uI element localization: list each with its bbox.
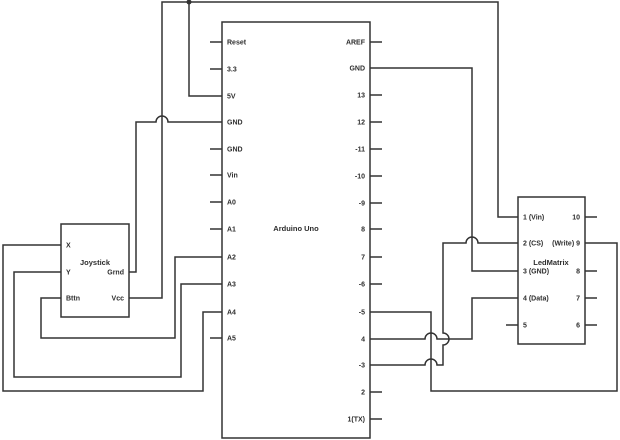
pin-label-arduino-a0: A0 [227,200,236,207]
pin-label-joystick-vcc: Vcc [112,296,125,303]
pin-label-arduino-8: 8 [361,227,365,234]
pin-label-arduino-12: 12 [357,120,365,127]
pin-label-arduino-1tx: 1(TX) [348,417,366,424]
wire-x-a4 [3,245,222,391]
pin-label-arduino-7: 7 [361,255,365,262]
pin-label-arduino-vin: Vin [227,173,238,180]
pin-label-joystick-x: X [66,243,71,250]
component-title-arduino: Arduino Uno [273,224,319,233]
pin-label-ledmatrix-5: 5 [523,323,527,330]
wire-5v-drop [189,2,222,96]
pin-label-arduino-aref: AREF [346,40,366,47]
pin-label-arduino-9: -9 [359,201,365,208]
pin-label-arduino-5v: 5V [227,94,236,101]
pin-label-arduino-a2: A2 [227,255,236,262]
pin-label-arduino-2: 2 [361,390,365,397]
wire-neg3-cs [370,237,518,365]
pin-label-arduino-gnd: GND [227,147,243,154]
pin-label-ledmatrix-6: 6 [576,323,580,330]
schematic-canvas: Arduino UnoReset3.35VGNDGNDVinA0A1A2A3A4… [0,0,620,440]
wire-junction-dot [187,0,192,5]
component-title-joystick: Joystick [80,258,111,267]
pin-label-arduino-a5: A5 [227,336,236,343]
wire-gnd-ledmatrix [370,68,518,271]
pin-label-ledmatrix-2cs: 2 (CS) [523,241,543,248]
pin-label-joystick-y: Y [66,270,71,277]
pin-label-arduino-gnd: GND [349,66,365,73]
pin-label-ledmatrix-1vin: 1 (Vin) [523,215,544,222]
pin-label-arduino-10: -10 [355,174,365,181]
pin-label-arduino-33: 3.3 [227,67,237,74]
pin-label-arduino-reset: Reset [227,40,247,47]
wire-gnd-joystick [129,116,222,272]
pin-label-arduino-3: -3 [359,363,365,370]
pin-label-arduino-13: 13 [357,93,365,100]
pin-label-joystick-bttn: Bttn [66,296,80,303]
pin-label-ledmatrix-write9: (Write) 9 [552,241,580,248]
pin-label-arduino-gnd: GND [227,120,243,127]
pin-label-arduino-a3: A3 [227,282,236,289]
pin-label-arduino-6: -6 [359,282,365,289]
wire-neg5-write9 [370,243,617,391]
pin-label-arduino-4: 4 [361,337,365,344]
circuit-diagram: Arduino UnoReset3.35VGNDGNDVinA0A1A2A3A4… [0,0,620,440]
wire-y-a3 [14,272,222,377]
pin-label-arduino-a1: A1 [227,227,236,234]
pin-label-ledmatrix-8: 8 [576,269,580,276]
pin-label-ledmatrix-4data: 4 (Data) [523,296,549,303]
pin-label-ledmatrix-10: 10 [572,215,580,222]
pin-label-ledmatrix-7: 7 [576,296,580,303]
wire-power-net [129,2,518,298]
pin-label-joystick-grnd: Grnd [107,270,124,277]
pin-label-arduino-11: -11 [355,147,365,154]
component-title-ledmatrix: LedMatrix [533,258,569,267]
pin-label-arduino-a4: A4 [227,310,236,317]
pin-label-arduino-5: -5 [359,310,365,317]
pin-label-ledmatrix-3gnd: 3 (GND) [523,269,549,276]
